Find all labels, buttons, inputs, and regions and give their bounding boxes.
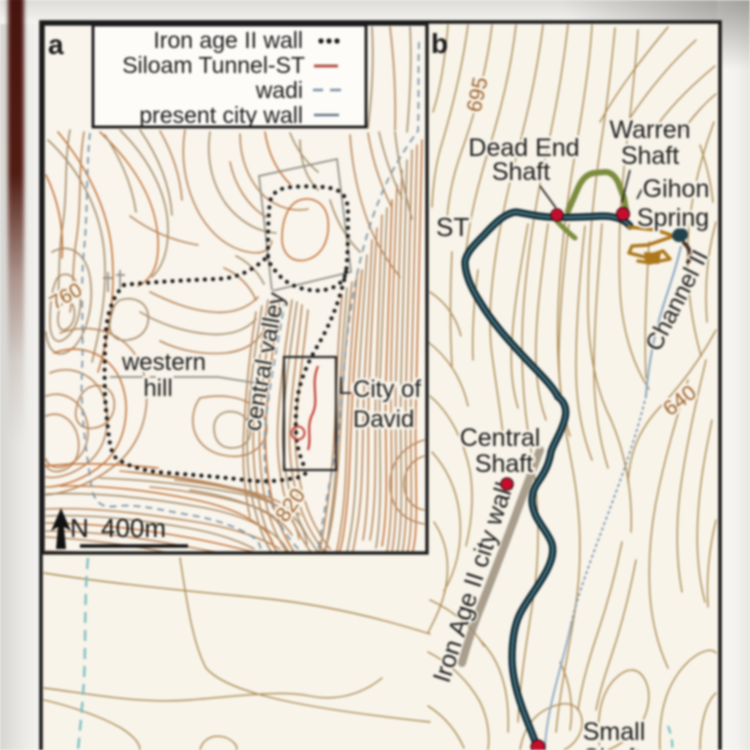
svg-text:Spring: Spring	[637, 204, 709, 232]
svg-text:b: b	[431, 28, 448, 59]
svg-text:Shaft: Shaft	[621, 142, 679, 170]
svg-text:Shaft: Shaft	[583, 744, 641, 750]
svg-text:Central: Central	[460, 424, 541, 452]
svg-text:Small: Small	[583, 718, 646, 746]
svg-text:400m: 400m	[101, 513, 166, 543]
svg-text:N: N	[70, 513, 89, 543]
svg-text:present city wall: present city wall	[139, 102, 303, 128]
svg-text:hill: hill	[143, 375, 172, 402]
svg-text:Iron age II wall: Iron age II wall	[153, 27, 303, 53]
svg-text:western: western	[121, 349, 206, 376]
svg-text:City of: City of	[353, 376, 421, 403]
svg-text:Siloam Tunnel-ST: Siloam Tunnel-ST	[122, 52, 305, 78]
svg-text:Gihon: Gihon	[643, 175, 710, 203]
svg-text:David: David	[353, 406, 414, 433]
svg-text:ST: ST	[436, 212, 469, 242]
svg-text:Shaft: Shaft	[475, 450, 533, 478]
svg-text:wadi: wadi	[255, 77, 303, 103]
svg-text:a: a	[48, 29, 64, 60]
svg-text:Shaft: Shaft	[492, 158, 550, 186]
svg-text:Warren: Warren	[609, 116, 690, 144]
